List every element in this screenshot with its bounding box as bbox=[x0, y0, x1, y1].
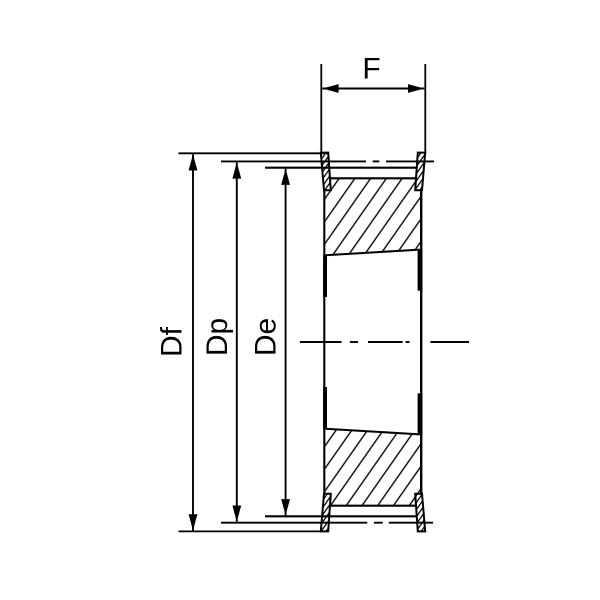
svg-text:Df: Df bbox=[156, 326, 189, 357]
svg-text:Dp: Dp bbox=[201, 318, 234, 356]
svg-text:F: F bbox=[362, 53, 380, 86]
svg-text:De: De bbox=[250, 318, 283, 356]
